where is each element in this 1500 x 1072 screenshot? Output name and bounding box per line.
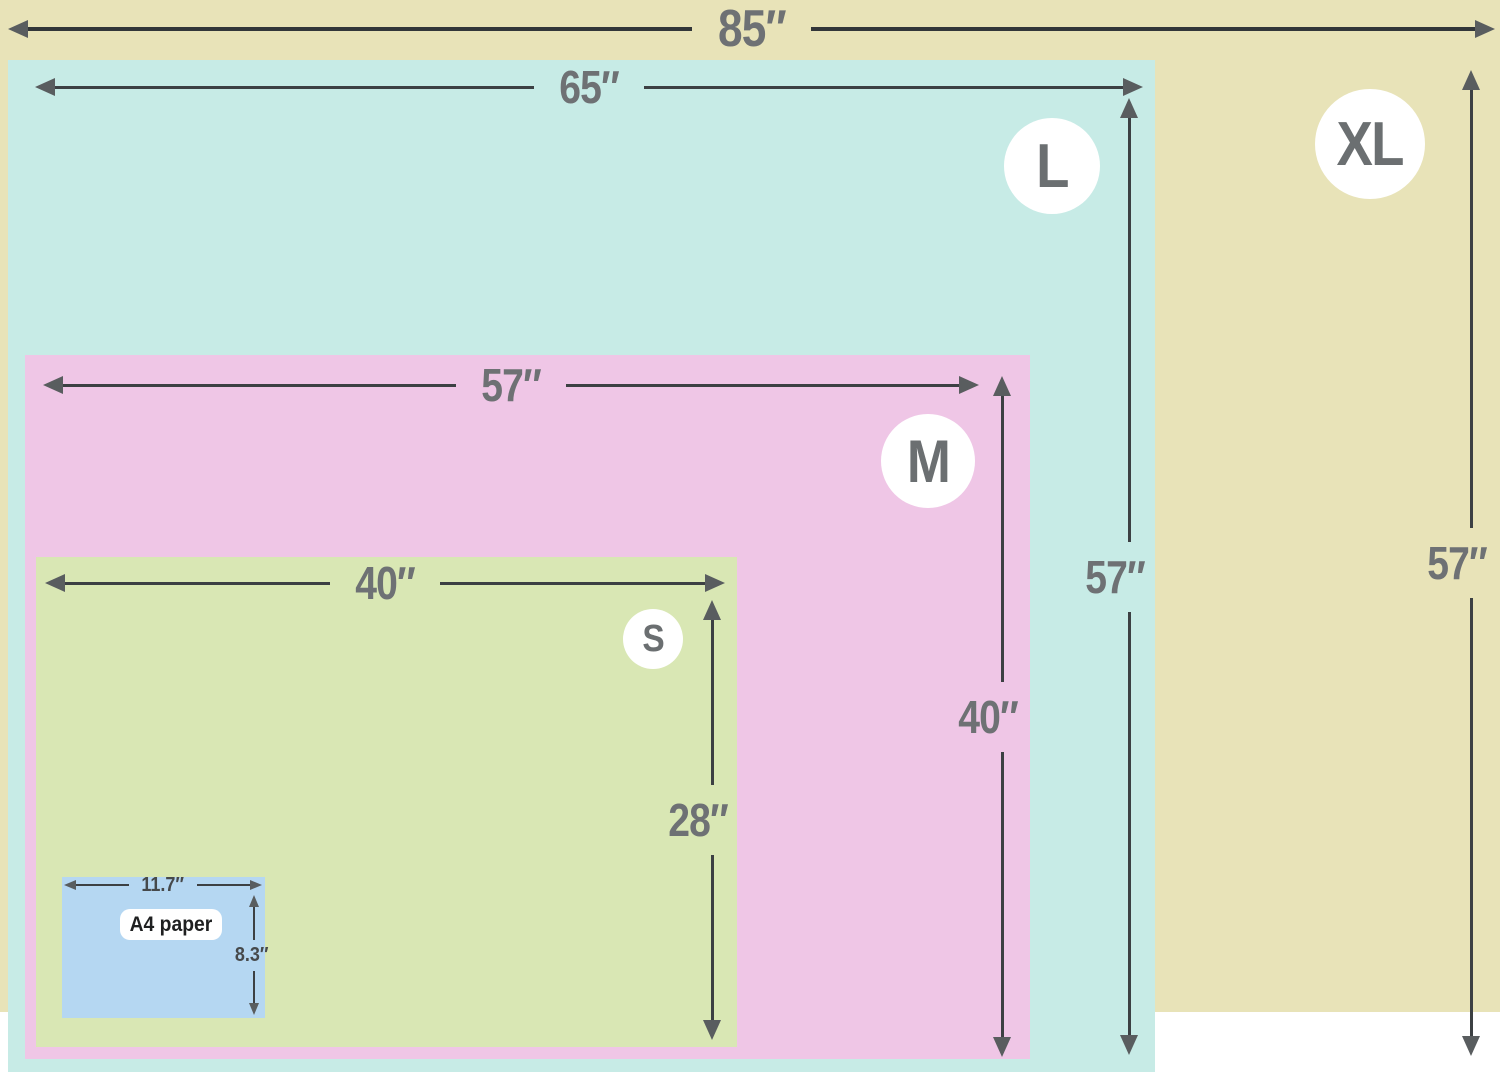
s-height-label: 28″	[668, 785, 728, 855]
xl-height-arrow: 57″	[1453, 70, 1489, 1056]
l-height-label: 57″	[1085, 542, 1145, 612]
a4-width-arrow: 11.7″	[64, 875, 262, 895]
s-badge-label: S	[643, 618, 664, 661]
m-height-label: 40″	[958, 682, 1018, 752]
m-height-arrow: 40″	[984, 376, 1020, 1057]
arrow-up-icon	[993, 376, 1011, 396]
s-width-arrow: 40″	[45, 565, 725, 601]
m-badge-label: M	[907, 427, 949, 496]
a4-height-arrow: 8.3″	[241, 895, 267, 1015]
s-badge: S	[623, 609, 683, 669]
arrow-down-icon	[993, 1037, 1011, 1057]
arrow-left-icon	[64, 880, 76, 890]
l-height-arrow: 57″	[1111, 98, 1147, 1055]
arrow-down-icon	[249, 1003, 259, 1015]
arrow-down-icon	[1462, 1036, 1480, 1056]
xl-badge: XL	[1315, 89, 1425, 199]
arrow-right-icon	[1475, 20, 1495, 38]
arrow-up-icon	[1120, 98, 1138, 118]
size-comparison-diagram: 85″ 65″ 57″ 40″ 57″ 57″	[0, 0, 1500, 1072]
a4-paper-label: A4 paper	[130, 913, 213, 937]
arrow-left-icon	[35, 78, 55, 96]
arrow-left-icon	[45, 574, 65, 592]
a4-height-label: 8.3″	[235, 940, 269, 971]
m-badge: M	[881, 414, 975, 508]
arrow-left-icon	[43, 376, 63, 394]
arrow-up-icon	[1462, 70, 1480, 90]
xl-height-label: 57″	[1427, 528, 1487, 598]
arrow-right-icon	[959, 376, 979, 394]
s-width-label: 40″	[338, 556, 432, 610]
s-height-arrow: 28″	[694, 600, 730, 1040]
l-badge: L	[1004, 118, 1100, 214]
a4-width-label: 11.7″	[133, 874, 194, 897]
arrow-down-icon	[1120, 1035, 1138, 1055]
l-badge-label: L	[1036, 131, 1068, 202]
a4-paper-pill: A4 paper	[120, 909, 222, 940]
xl-width-arrow: 85″	[8, 11, 1495, 47]
arrow-left-icon	[8, 20, 28, 38]
l-width-arrow: 65″	[35, 69, 1143, 105]
arrow-up-icon	[703, 600, 721, 620]
arrow-right-icon	[705, 574, 725, 592]
arrow-right-icon	[1123, 78, 1143, 96]
arrow-down-icon	[703, 1020, 721, 1040]
xl-width-label: 85″	[701, 0, 803, 59]
l-width-label: 65″	[542, 60, 636, 114]
xl-badge-label: XL	[1337, 109, 1403, 180]
arrow-up-icon	[249, 895, 259, 907]
arrow-right-icon	[250, 880, 262, 890]
m-width-arrow: 57″	[43, 367, 979, 403]
m-width-label: 57″	[464, 358, 558, 412]
